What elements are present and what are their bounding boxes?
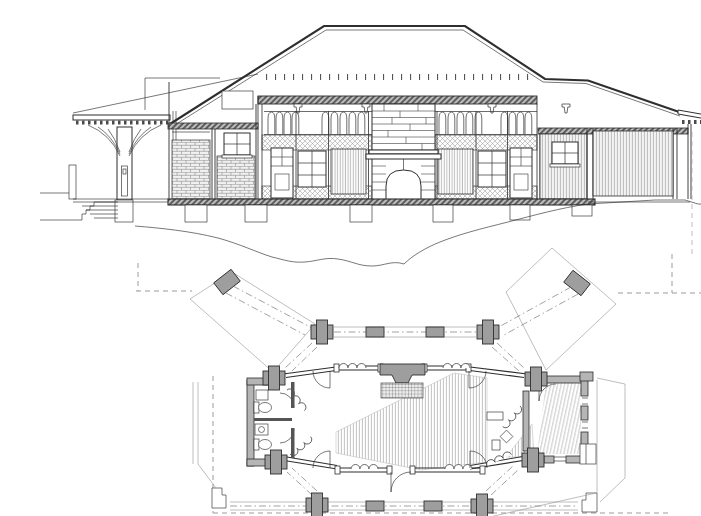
hall-door-right bbox=[510, 148, 532, 198]
mantel-upper bbox=[369, 150, 438, 154]
garage-wing-window bbox=[550, 142, 580, 167]
corner-pier-sw bbox=[265, 450, 287, 474]
stone-fireplace bbox=[366, 104, 441, 200]
diagonal-walkways bbox=[190, 248, 616, 372]
architectural-drawing-sheet: Architectural drawing: building cross-se… bbox=[40, 16, 701, 516]
curtain-panel-right bbox=[438, 149, 473, 194]
roof-dormer-box bbox=[222, 91, 253, 109]
bathrooms-wing bbox=[247, 366, 295, 474]
porch-pier bbox=[117, 127, 132, 200]
terrace-wrap-right bbox=[597, 378, 625, 502]
plan-view bbox=[125, 248, 701, 516]
counter bbox=[487, 412, 503, 420]
corner-pier-nw bbox=[263, 366, 285, 390]
sink-2 bbox=[255, 424, 268, 435]
corner-pier-ne bbox=[525, 367, 547, 391]
bath-partition bbox=[254, 418, 292, 421]
main-ceiling-band bbox=[258, 96, 537, 104]
toilet-2 bbox=[259, 440, 272, 450]
curved-brackets-right bbox=[129, 125, 161, 156]
floor-and-foundation bbox=[73, 199, 690, 222]
kitchenette-fixtures bbox=[487, 412, 513, 450]
plan-fireplace bbox=[380, 364, 425, 398]
garage-door bbox=[593, 131, 673, 196]
far-hip-edge bbox=[145, 78, 220, 110]
firebox-arch bbox=[386, 170, 421, 200]
hall-right-bays bbox=[437, 104, 540, 199]
hall-window-left bbox=[298, 151, 326, 187]
walkway-pier-right bbox=[564, 270, 591, 295]
hall-door-left bbox=[271, 148, 293, 198]
terrace-end-pier-left bbox=[212, 488, 226, 508]
porch-pier-footing bbox=[115, 200, 133, 222]
walkway-pier-left bbox=[214, 269, 241, 294]
entry-steps bbox=[40, 165, 118, 220]
wing-west-wall bbox=[247, 380, 254, 466]
service-wing-window bbox=[222, 133, 252, 158]
curved-brackets-left bbox=[88, 125, 120, 156]
south-exit-door bbox=[391, 472, 411, 492]
side-room-hatch bbox=[537, 382, 581, 454]
right-eave bbox=[678, 110, 701, 123]
corner-post-se bbox=[580, 444, 596, 464]
garage-wing-section bbox=[538, 110, 701, 199]
toilet-1 bbox=[259, 403, 272, 413]
section-view bbox=[40, 26, 701, 266]
foundation-piers bbox=[185, 205, 592, 222]
sink-1 bbox=[256, 390, 268, 400]
hall-window-right bbox=[478, 151, 506, 187]
curtain-panel-left bbox=[331, 149, 366, 194]
hearth bbox=[381, 383, 423, 398]
porch-post bbox=[69, 165, 76, 199]
mantel-shelf bbox=[366, 154, 441, 159]
porch-fascia bbox=[73, 115, 170, 120]
